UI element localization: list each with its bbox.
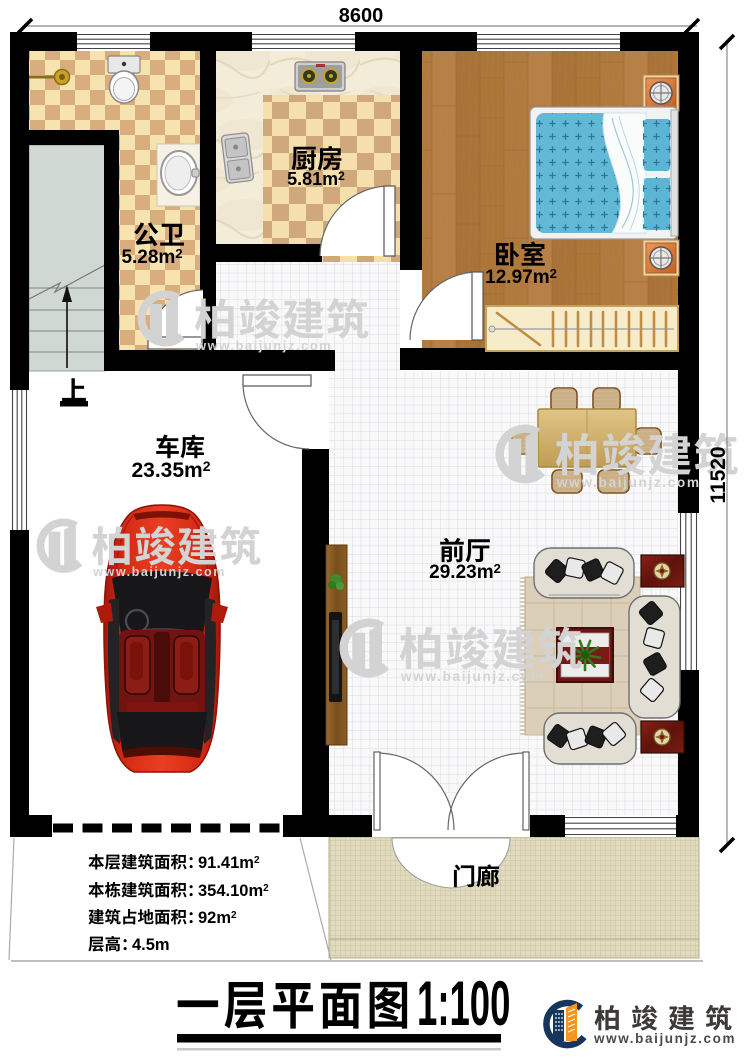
svg-text:8600: 8600 (339, 5, 384, 27)
svg-text:354.10m2: 354.10m2 (198, 882, 269, 900)
svg-text:29.23m2: 29.23m2 (429, 561, 501, 583)
svg-text:www.baijunjz.com: www.baijunjz.com (556, 475, 701, 490)
svg-text:www.baijunjz.com: www.baijunjz.com (92, 565, 226, 579)
svg-text:www.baijunjz.com: www.baijunjz.com (593, 1031, 736, 1046)
svg-text:23.35m2: 23.35m2 (131, 458, 210, 482)
svg-text:www.baijunjz.com: www.baijunjz.com (195, 338, 332, 353)
svg-text:1:100: 1:100 (417, 968, 510, 1039)
svg-text:91.41m2: 91.41m2 (198, 854, 260, 872)
svg-text:12.97m2: 12.97m2 (485, 266, 557, 288)
svg-text:www.baijunjz.com: www.baijunjz.com (400, 669, 545, 684)
svg-text:11520: 11520 (707, 446, 730, 503)
svg-text:4.5m: 4.5m (132, 936, 170, 954)
svg-text:5.28m2: 5.28m2 (121, 246, 182, 268)
svg-text:5.81m2: 5.81m2 (287, 169, 345, 189)
